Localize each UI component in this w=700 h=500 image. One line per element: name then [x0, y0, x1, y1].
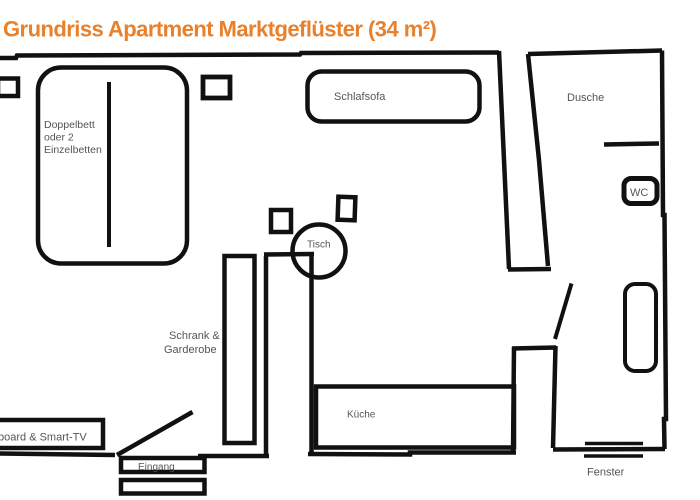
svg-text:Garderobe: Garderobe: [164, 344, 217, 356]
svg-text:Sideboard & Smart-TV: Sideboard & Smart-TV: [0, 432, 87, 444]
svg-text:Fenster: Fenster: [587, 467, 625, 479]
svg-text:Grundriss Apartment Marktgeflü: Grundriss Apartment Marktgeflüster (34 m…: [3, 17, 437, 42]
svg-text:Einzelbetten: Einzelbetten: [44, 144, 102, 156]
svg-text:Dusche: Dusche: [567, 92, 604, 104]
svg-text:Doppelbett: Doppelbett: [44, 119, 95, 131]
svg-text:Schrank &: Schrank &: [169, 330, 220, 342]
svg-text:Tisch: Tisch: [307, 240, 331, 251]
svg-text:Eingang: Eingang: [138, 462, 175, 473]
svg-text:Schlafsofa: Schlafsofa: [334, 91, 386, 103]
svg-text:oder 2: oder 2: [44, 132, 74, 144]
svg-text:WC: WC: [630, 187, 648, 199]
svg-text:Küche: Küche: [347, 410, 376, 421]
